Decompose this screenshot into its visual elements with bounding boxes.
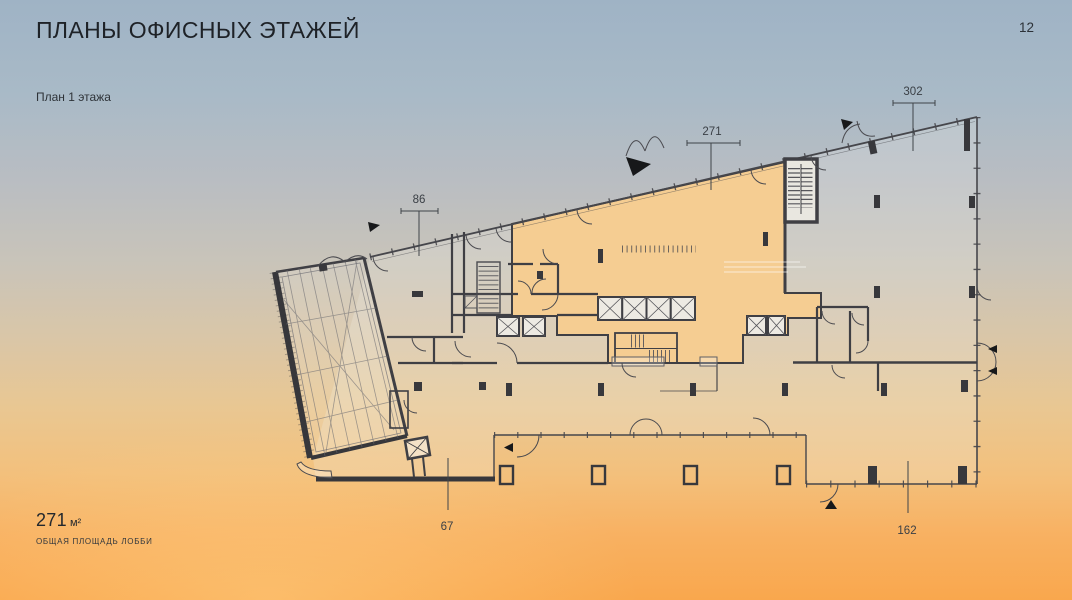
lobby-area-value: 271 <box>36 510 67 530</box>
floor-plan-canvas: 86 271 302 67 162 <box>0 0 1072 600</box>
elevator-bank <box>598 297 695 320</box>
dimension-label-67: 67 <box>441 521 454 533</box>
stair-northeast <box>785 159 817 222</box>
slide: ПЛАНЫ ОФИСНЫХ ЭТАЖЕЙ 12 План 1 этажа <box>0 0 1072 600</box>
lobby-area-caption: ОБЩАЯ ПЛОЩАДЬ ЛОББИ <box>36 537 153 546</box>
reception-desk <box>612 357 717 366</box>
perimeter-column-outlines <box>500 466 790 484</box>
elevator-pair-east <box>747 316 785 335</box>
lobby-area-unit: м² <box>70 517 81 529</box>
area-legend: 271м² ОБЩАЯ ПЛОЩАДЬ ЛОББИ <box>36 510 153 546</box>
dimension-label-86: 86 <box>413 194 426 206</box>
dimension-label-162: 162 <box>897 525 916 537</box>
main-entrance-arrow-icon <box>626 157 651 176</box>
dimension-label-302: 302 <box>903 86 922 98</box>
dimension-label-271: 271 <box>702 126 721 138</box>
